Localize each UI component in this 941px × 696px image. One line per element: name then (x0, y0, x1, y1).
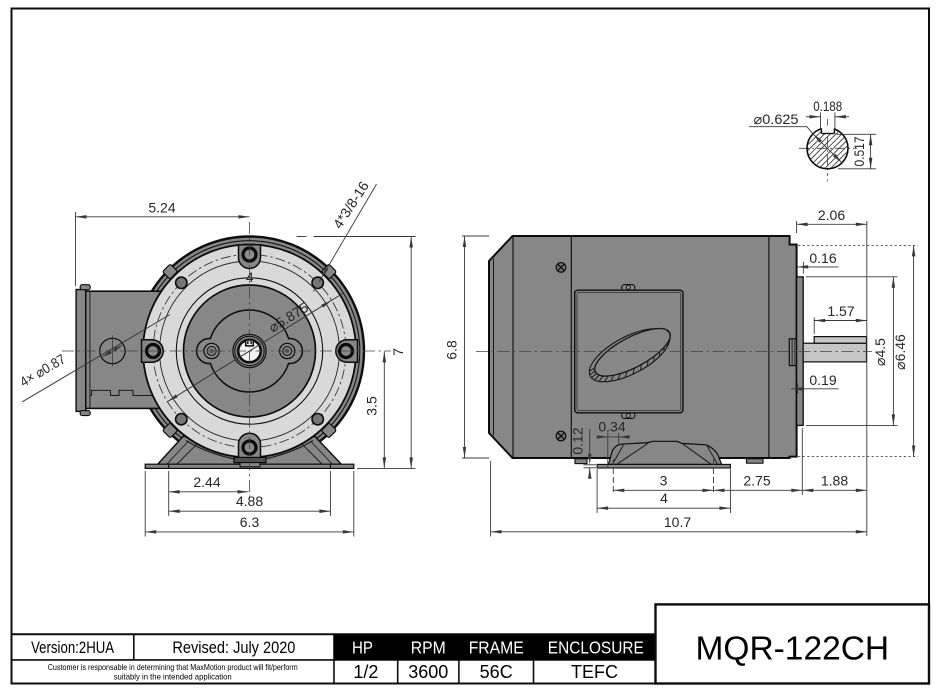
svg-text:2.75: 2.75 (743, 472, 770, 488)
svg-text:Revised: July 2020: Revised: July 2020 (172, 638, 295, 657)
svg-text:5.24: 5.24 (148, 200, 175, 216)
svg-text:3600: 3600 (408, 662, 448, 682)
svg-text:56C: 56C (480, 662, 513, 682)
svg-text:0.12: 0.12 (570, 427, 586, 454)
svg-text:0.34: 0.34 (598, 418, 625, 434)
svg-text:⌀0.625: ⌀0.625 (754, 111, 799, 127)
svg-text:4.88: 4.88 (236, 493, 263, 509)
svg-text:10.7: 10.7 (664, 514, 691, 530)
svg-text:0.517: 0.517 (851, 136, 867, 166)
svg-text:Version:2HUA: Version:2HUA (31, 638, 115, 657)
svg-text:suitably in the intended appli: suitably in the intended application (114, 671, 232, 681)
svg-text:1/2: 1/2 (353, 662, 378, 682)
svg-text:3.5: 3.5 (364, 396, 380, 416)
svg-text:6.8: 6.8 (444, 340, 460, 360)
svg-text:0.16: 0.16 (809, 250, 836, 266)
svg-text:RPM: RPM (411, 638, 446, 658)
svg-text:FRAME: FRAME (469, 638, 524, 658)
svg-text:4: 4 (660, 490, 668, 506)
svg-text:2.44: 2.44 (193, 474, 220, 490)
svg-text:0.19: 0.19 (809, 372, 836, 388)
svg-text:HP: HP (352, 638, 373, 658)
svg-text:3: 3 (660, 472, 668, 488)
svg-text:MQR-122CH: MQR-122CH (696, 631, 890, 668)
svg-text:4: 4 (246, 269, 254, 285)
svg-text:ENCLOSURE: ENCLOSURE (548, 638, 644, 658)
svg-text:⌀4.5: ⌀4.5 (872, 338, 888, 366)
svg-text:⌀6.46: ⌀6.46 (892, 334, 908, 370)
svg-text:TEFC: TEFC (571, 662, 618, 682)
svg-text:0.188: 0.188 (813, 98, 842, 114)
svg-text:Customer is responsable in det: Customer is responsable in determining t… (48, 662, 298, 672)
svg-text:1.88: 1.88 (821, 472, 848, 488)
svg-text:1.57: 1.57 (827, 303, 854, 319)
svg-text:2.06: 2.06 (818, 207, 845, 223)
svg-text:7: 7 (390, 348, 406, 356)
svg-text:6.3: 6.3 (240, 514, 260, 530)
